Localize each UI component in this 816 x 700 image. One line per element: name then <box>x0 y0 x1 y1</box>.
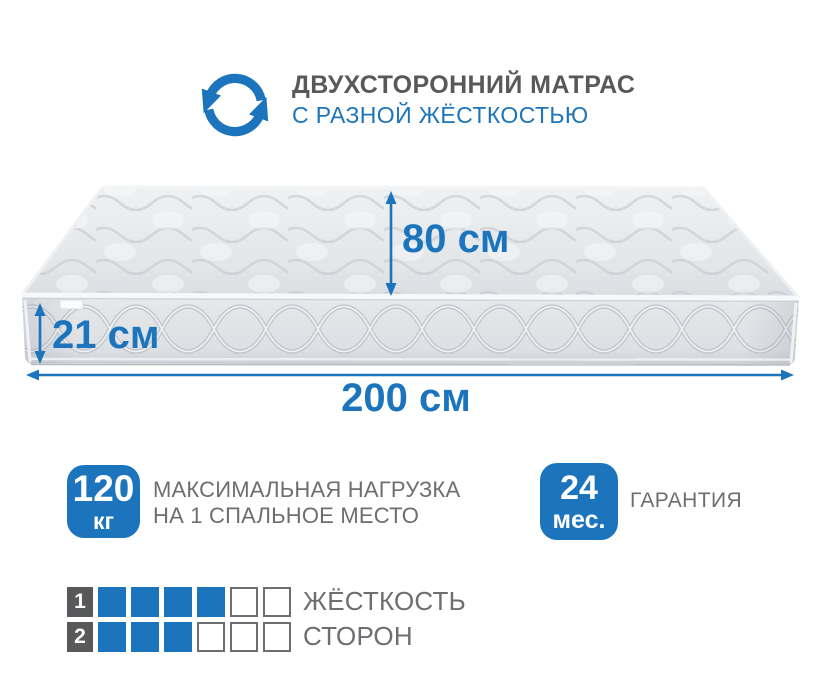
scale-square-empty <box>263 622 291 652</box>
firmness-row-side1: 1 <box>67 587 291 617</box>
scale-square-filled <box>131 622 159 652</box>
max-load-caption: МАКСИМАЛЬНАЯ НАГРУЗКА НА 1 СПАЛЬНОЕ МЕСТ… <box>153 477 460 529</box>
max-load-badge: 120 кг <box>67 465 140 538</box>
firmness-squares-side2 <box>98 622 291 652</box>
firmness-squares-side1 <box>98 587 291 617</box>
side-number-badge: 1 <box>67 587 93 617</box>
height-label: 80 см <box>402 217 509 261</box>
warranty-value: 24 <box>560 471 598 505</box>
firmness-row-side2: 2 <box>67 622 291 652</box>
infographic-canvas: ДВУХСТОРОННИЙ МАТРАС С РАЗНОЙ ЖЁСТКОСТЬЮ <box>0 0 816 700</box>
firmness-scale: 1 2 <box>67 587 291 652</box>
page-title: ДВУХСТОРОННИЙ МАТРАС <box>292 71 635 100</box>
flip-arrows-icon <box>199 64 271 146</box>
scale-square-filled <box>164 622 192 652</box>
scale-square-filled <box>98 587 126 617</box>
scale-square-filled <box>98 622 126 652</box>
mattress-label-tag <box>60 300 83 309</box>
scale-square-empty <box>263 587 291 617</box>
firmness-caption: ЖЁСТКОСТЬ СТОРОН <box>303 584 466 654</box>
warranty-badge: 24 мес. <box>540 463 618 540</box>
scale-square-empty <box>197 622 225 652</box>
page-subtitle: С РАЗНОЙ ЖЁСТКОСТЬЮ <box>292 102 589 129</box>
width-label: 200 см <box>341 376 471 420</box>
scale-square-filled <box>131 587 159 617</box>
warranty-caption: ГАРАНТИЯ <box>630 489 742 513</box>
scale-square-filled <box>164 587 192 617</box>
warranty-unit: мес. <box>553 508 606 533</box>
mattress-diagram: 80 см 21 см 200 см <box>0 155 816 425</box>
thickness-label: 21 см <box>52 313 159 357</box>
scale-square-filled <box>197 587 225 617</box>
scale-square-empty <box>230 587 258 617</box>
scale-square-empty <box>230 622 258 652</box>
side-number-badge: 2 <box>67 622 93 652</box>
max-load-value: 120 <box>73 470 135 507</box>
max-load-unit: кг <box>93 510 114 533</box>
